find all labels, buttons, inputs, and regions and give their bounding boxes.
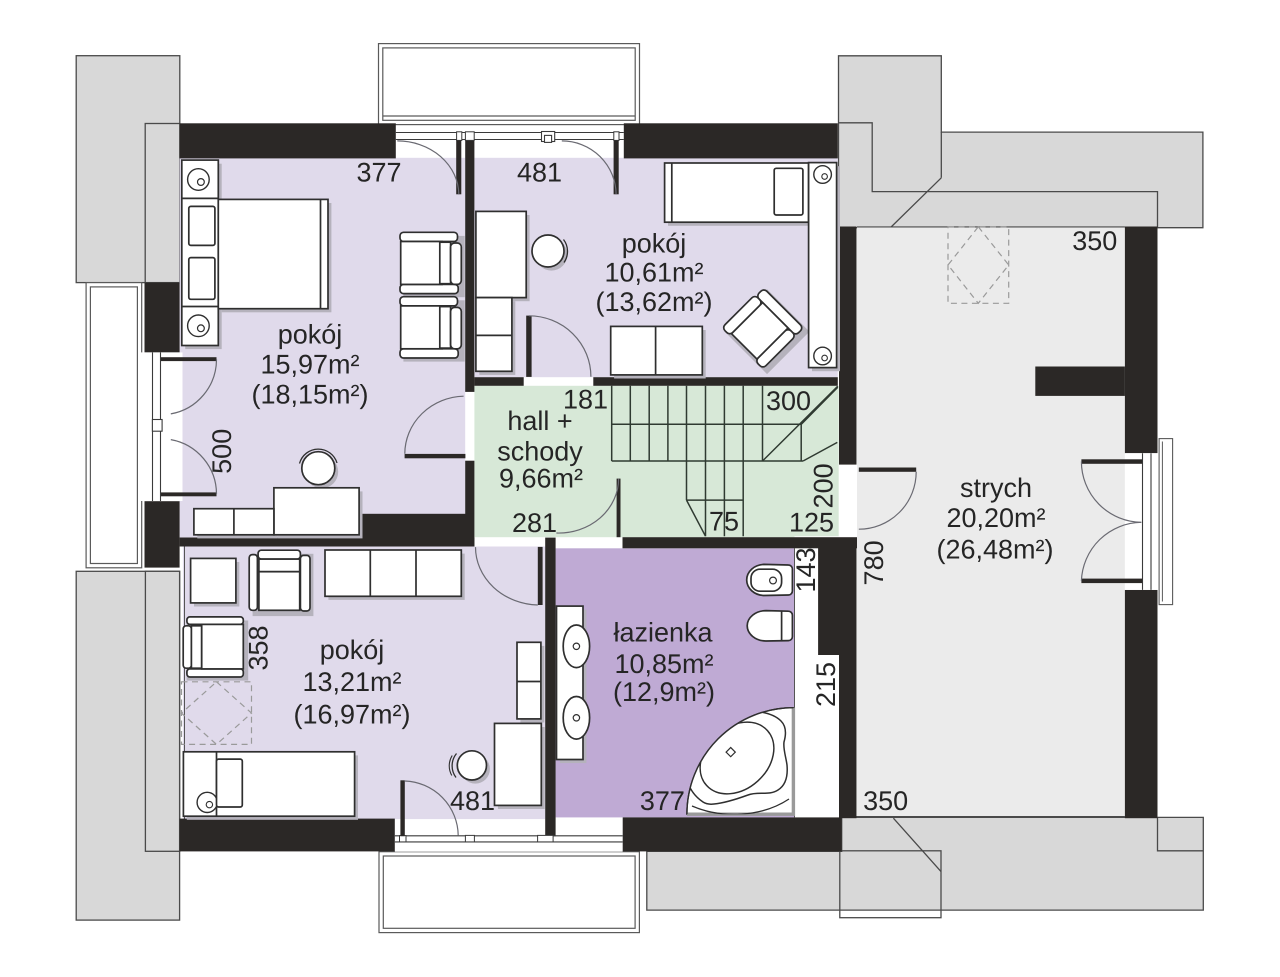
svg-text:10,61m²: 10,61m² — [604, 258, 703, 288]
svg-text:143: 143 — [791, 547, 821, 592]
svg-text:(18,15m²): (18,15m²) — [251, 380, 368, 410]
svg-text:500: 500 — [207, 429, 237, 474]
svg-text:(12,9m²): (12,9m²) — [613, 677, 715, 707]
svg-text:pokój: pokój — [320, 635, 385, 665]
svg-text:377: 377 — [356, 158, 401, 188]
svg-text:377: 377 — [640, 786, 685, 816]
svg-text:75: 75 — [709, 507, 739, 537]
svg-text:481: 481 — [517, 158, 562, 188]
svg-text:200: 200 — [809, 463, 839, 508]
svg-text:(13,62m²): (13,62m²) — [595, 287, 712, 317]
svg-text:20,20m²: 20,20m² — [946, 503, 1045, 533]
svg-text:schody: schody — [497, 437, 583, 467]
svg-text:125: 125 — [789, 508, 834, 538]
svg-text:pokój: pokój — [278, 320, 343, 350]
svg-text:300: 300 — [766, 386, 811, 416]
svg-text:9,66m²: 9,66m² — [499, 464, 583, 494]
svg-text:358: 358 — [244, 625, 274, 670]
svg-text:(26,48m²): (26,48m²) — [936, 535, 1053, 565]
svg-text:15,97m²: 15,97m² — [260, 350, 359, 380]
svg-text:481: 481 — [450, 786, 495, 816]
svg-text:pokój: pokój — [622, 229, 687, 259]
svg-text:215: 215 — [811, 662, 841, 707]
svg-text:10,85m²: 10,85m² — [614, 649, 713, 679]
svg-text:281: 281 — [512, 508, 557, 538]
svg-text:350: 350 — [1072, 226, 1117, 256]
svg-text:181: 181 — [563, 385, 608, 415]
svg-text:780: 780 — [859, 540, 889, 585]
svg-text:(16,97m²): (16,97m²) — [293, 700, 410, 730]
svg-text:łazienka: łazienka — [613, 618, 713, 648]
svg-text:13,21m²: 13,21m² — [302, 667, 401, 697]
svg-text:strych: strych — [960, 473, 1032, 503]
svg-text:350: 350 — [863, 786, 908, 816]
